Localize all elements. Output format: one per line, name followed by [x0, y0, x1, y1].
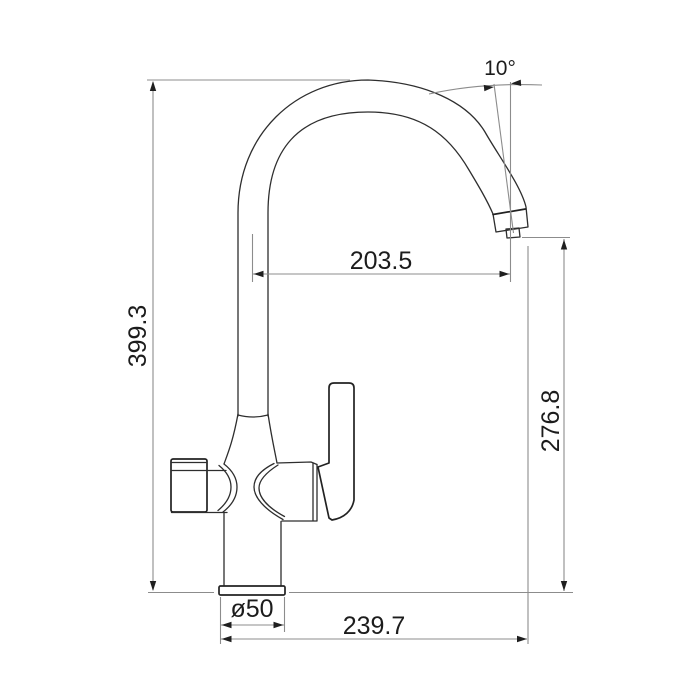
arrow-up [150, 81, 156, 91]
dim-label-overall-height: 399.3 [124, 305, 152, 368]
filter-knob-fill [171, 459, 207, 512]
base-flange [219, 586, 285, 595]
dim-label-overall-depth: 239.7 [343, 612, 406, 640]
dimension-annotations: 399.3 203.5 10° 276.8 [124, 57, 573, 644]
dimension-spout-reach: 203.5 [253, 234, 511, 282]
arrow-right [274, 622, 284, 628]
cartridge-housing-fill [280, 462, 317, 521]
filter-connector-fill [206, 470, 228, 513]
arrow-right [500, 271, 510, 277]
faucet-technical-drawing: 399.3 203.5 10° 276.8 [0, 0, 700, 700]
arrow-right [517, 636, 527, 642]
handle-fill [318, 383, 354, 520]
arrow-down [150, 581, 156, 591]
arrow-left [222, 636, 232, 642]
dim-label-spout-angle: 10° [484, 57, 516, 80]
dim-label-outlet-height: 276.8 [537, 390, 565, 453]
mounting-column-fill [224, 512, 281, 586]
dim-label-spout-reach: 203.5 [350, 247, 413, 275]
arrow-down [561, 581, 567, 591]
drawing-canvas: 399.3 203.5 10° 276.8 [0, 0, 700, 700]
arrow-angle-right [511, 80, 521, 87]
arrow-up [561, 240, 567, 250]
dim-label-base-diameter: ø50 [230, 595, 273, 623]
dimension-outlet-height: 276.8 [522, 238, 570, 592]
